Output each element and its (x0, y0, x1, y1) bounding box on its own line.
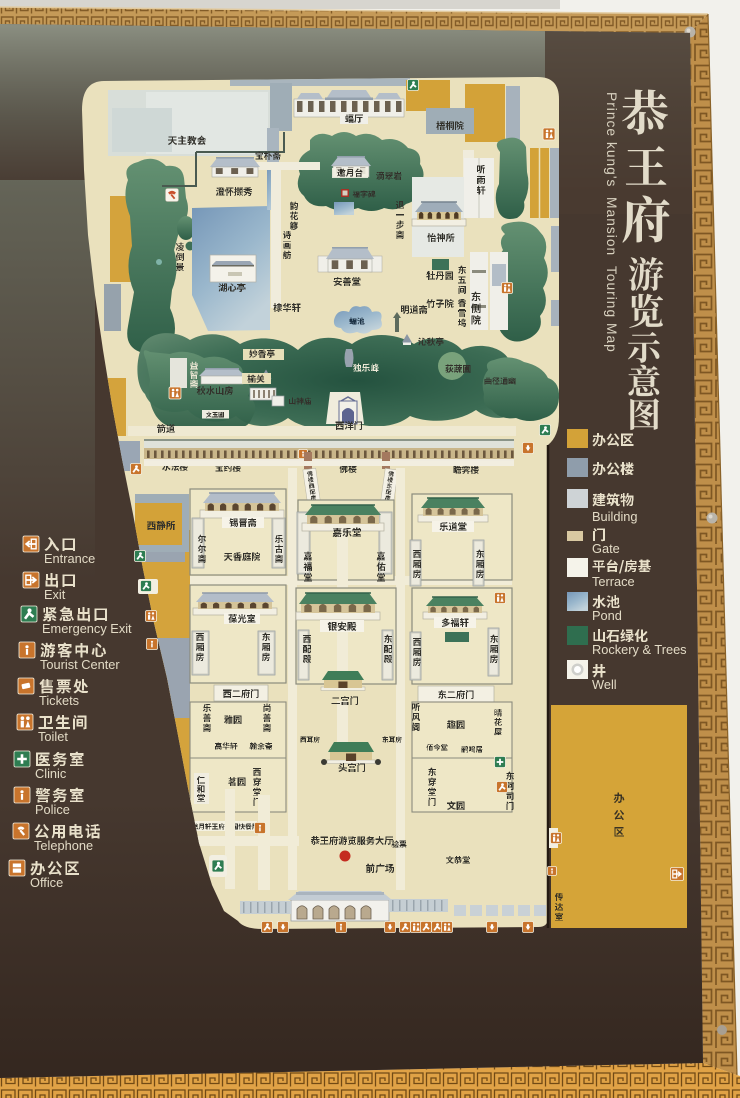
svg-text:Telephone: Telephone (34, 838, 93, 853)
svg-text:Building: Building (592, 509, 638, 524)
svg-text:Prince kung's Mansion Tourin: Prince kung's Mansion Touring Map (604, 92, 619, 353)
svg-text:Tickets: Tickets (39, 693, 79, 708)
svg-text:Rockery & Trees: Rockery & Trees (592, 642, 687, 657)
svg-text:Terrace: Terrace (592, 574, 635, 589)
svg-text:Emergency Exit: Emergency Exit (42, 621, 132, 636)
svg-text:Exit: Exit (44, 587, 66, 602)
svg-text:Well: Well (592, 677, 617, 692)
svg-text:Pond: Pond (592, 608, 622, 623)
svg-text:Gate: Gate (592, 541, 620, 556)
svg-text:Tourist Center: Tourist Center (40, 657, 120, 672)
svg-text:Office: Office (30, 875, 63, 890)
svg-text:Toilet: Toilet (38, 729, 68, 744)
svg-text:Police: Police (35, 802, 70, 817)
svg-text:Entrance: Entrance (44, 551, 95, 566)
svg-text:Clinic: Clinic (35, 766, 67, 781)
